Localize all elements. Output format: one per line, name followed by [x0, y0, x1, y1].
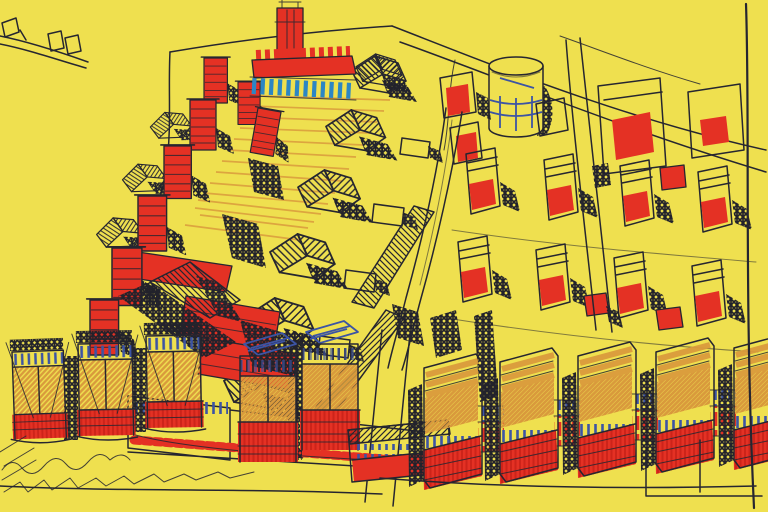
landmark-campanile: [275, 0, 305, 62]
sketch-canvas: [0, 0, 768, 512]
urban-sketch-drawing: [0, 0, 768, 512]
slab-towers-left: [6, 322, 208, 444]
gasometer-cylinder: [489, 57, 553, 137]
